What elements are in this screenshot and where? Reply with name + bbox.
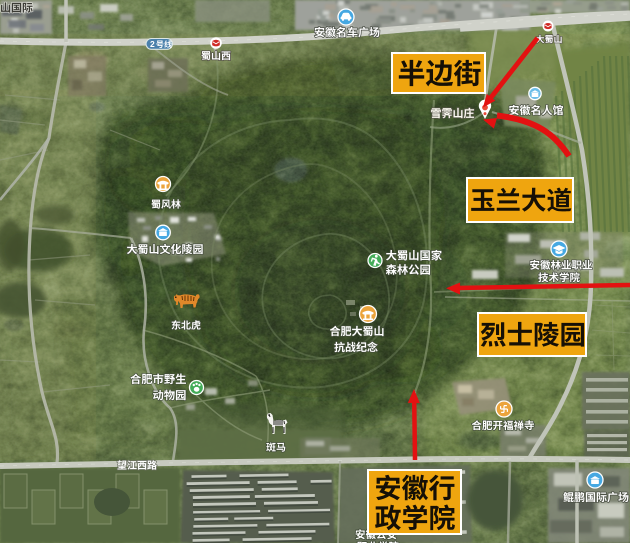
svg-text:2: 2 (150, 39, 155, 49)
